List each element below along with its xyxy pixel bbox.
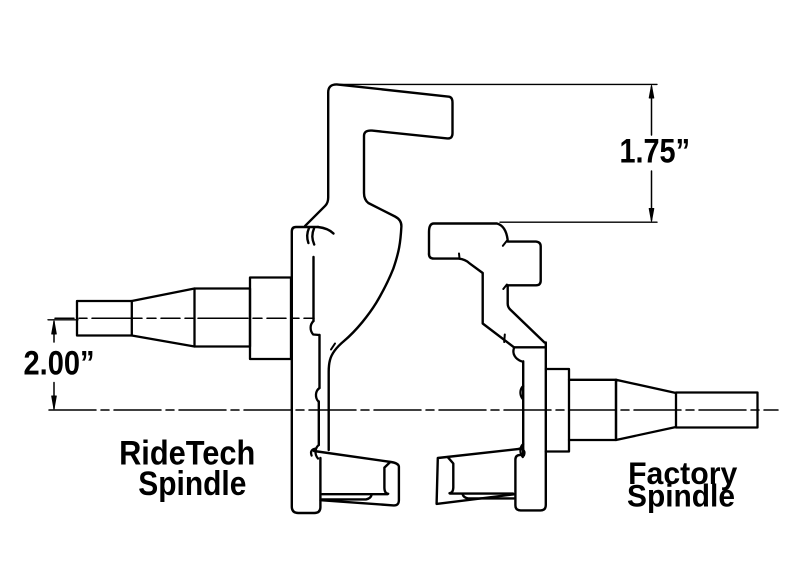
svg-text:Spindle: Spindle bbox=[627, 477, 735, 513]
svg-text:Spindle: Spindle bbox=[138, 465, 246, 503]
svg-text:1.75”: 1.75” bbox=[620, 133, 691, 171]
svg-text:2.00”: 2.00” bbox=[24, 345, 95, 383]
